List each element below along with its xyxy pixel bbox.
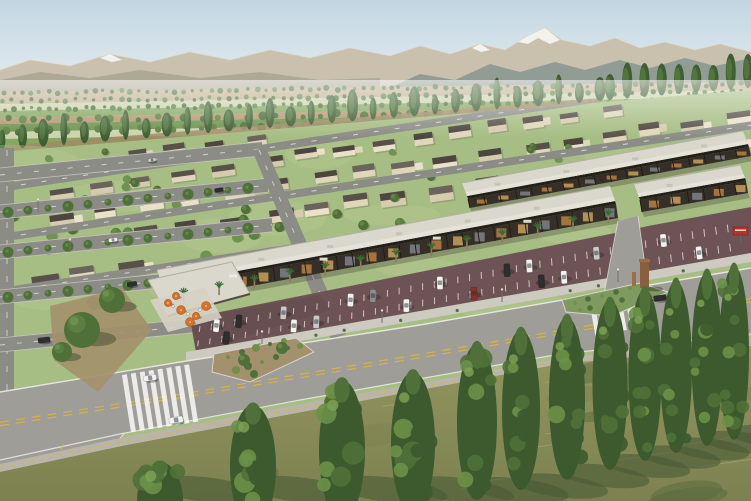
- atmosphere-layer: [0, 80, 751, 138]
- aerial-rendering: [0, 0, 751, 501]
- scene-svg: [0, 0, 751, 501]
